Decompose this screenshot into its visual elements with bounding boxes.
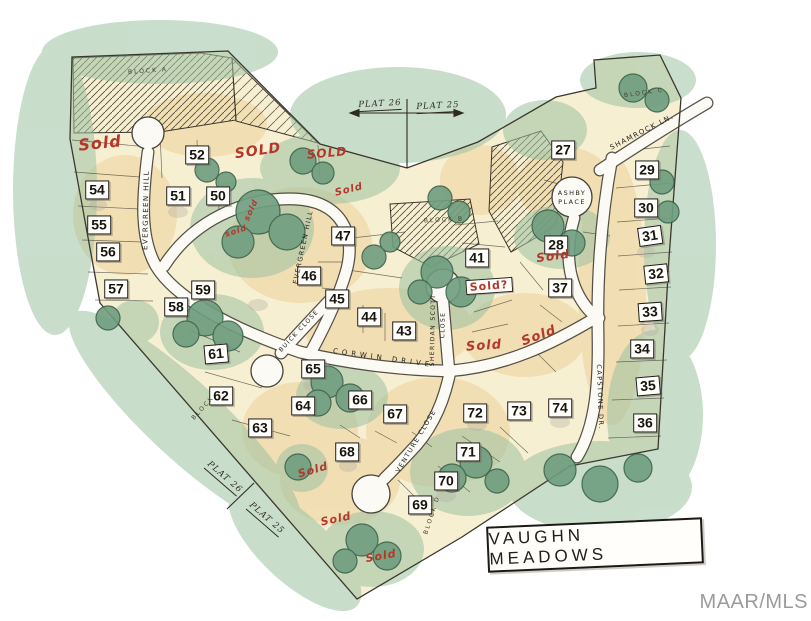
block-label: BLOCK: [190, 394, 215, 421]
sold-annotation: Sold: [519, 323, 558, 349]
sold-annotation: SOLD: [234, 140, 282, 162]
lot-number-label: 29: [635, 160, 659, 179]
lot-number-label: 61: [203, 343, 228, 364]
lot-number-label: 27: [551, 140, 575, 159]
lot-number-label: 36: [633, 413, 657, 432]
lot-number-label: 32: [643, 263, 668, 284]
lot-number-label: 57: [104, 279, 128, 298]
lot-number-label: 52: [185, 145, 209, 164]
street-name-label: CLOSE: [439, 312, 446, 339]
lot-number-label: 70: [434, 471, 458, 490]
lot-number-label: 56: [96, 242, 120, 261]
block-label: BLOCK C: [624, 87, 665, 100]
street-name-label: EVERGREEN HILL: [141, 170, 150, 250]
sold-annotation: sold: [224, 223, 248, 239]
lot-number-label: 35: [635, 375, 660, 396]
street-name-label: CORWIN DRIVE: [332, 347, 433, 369]
sold-annotation: Sold: [334, 181, 364, 199]
sold-annotation: sold: [242, 198, 260, 222]
street-name-label: ASHBY: [558, 189, 587, 197]
lot-number-label: 50: [206, 186, 230, 205]
lot-number-label: 37: [548, 278, 572, 297]
block-label: BLOCK B: [424, 215, 464, 224]
street-name-label: CAPSTONE DR.: [595, 364, 605, 430]
block-label: BLOCK A: [128, 66, 168, 76]
lot-number-label: 47: [331, 226, 355, 245]
sold-annotation: SOLD: [306, 144, 348, 161]
street-name-label: PLACE: [558, 198, 586, 206]
lot-number-label: 34: [630, 339, 654, 358]
lot-number-label: 73: [507, 401, 531, 420]
street-name-label: SHERIDAN SCOTT: [429, 294, 437, 367]
lot-number-label: 63: [248, 418, 272, 437]
lot-number-label: 30: [634, 198, 658, 217]
sold-annotation: Sold: [365, 547, 398, 565]
lot-number-label: 66: [348, 390, 372, 409]
sold-annotation: Sold?: [465, 277, 512, 295]
plat-boundary-label: PLAT 25: [416, 100, 460, 114]
plat-boundary-label: PLAT 26: [358, 98, 402, 112]
plat-map: 2728293031323334353637414344454647505152…: [0, 0, 811, 621]
lot-number-label: 55: [87, 215, 111, 234]
lot-number-label: 51: [166, 186, 190, 205]
lot-number-label: 31: [637, 225, 663, 247]
subdivision-title: VAUGHN MEADOWS: [488, 520, 702, 569]
sold-annotation: Sold: [77, 131, 122, 154]
lot-number-label: 59: [191, 280, 215, 299]
plat-boundary-label: PLAT 25: [246, 500, 287, 537]
sold-annotation: Sold: [296, 459, 330, 480]
lot-number-label: 72: [463, 403, 487, 422]
lot-number-label: 43: [392, 321, 416, 340]
street-name-label: BUICK CLOSE: [278, 308, 321, 353]
lot-number-label: 58: [164, 297, 188, 316]
lot-number-label: 45: [325, 289, 349, 308]
sold-annotation: Sold: [465, 337, 502, 354]
lot-number-label: 64: [291, 396, 315, 415]
lot-number-label: 71: [456, 442, 480, 461]
subdivision-title-box: VAUGHN MEADOWS: [486, 517, 704, 572]
lot-number-label: 41: [465, 248, 489, 267]
lot-number-label: 44: [357, 307, 381, 326]
lot-number-label: 65: [301, 359, 325, 378]
lot-number-label: 54: [85, 180, 109, 199]
lot-number-label: 74: [548, 398, 572, 417]
sold-annotation: Sold: [319, 509, 352, 528]
lot-number-label: 33: [638, 302, 663, 323]
street-name-label: SHAMROCK LN.: [609, 112, 676, 151]
mls-watermark: MAAR/MLS: [688, 591, 808, 614]
lot-number-label: 68: [335, 442, 359, 461]
sold-annotation: Sold: [535, 247, 570, 266]
plat-boundary-label: PLAT 26: [204, 459, 245, 496]
lot-number-label: 67: [383, 404, 407, 423]
